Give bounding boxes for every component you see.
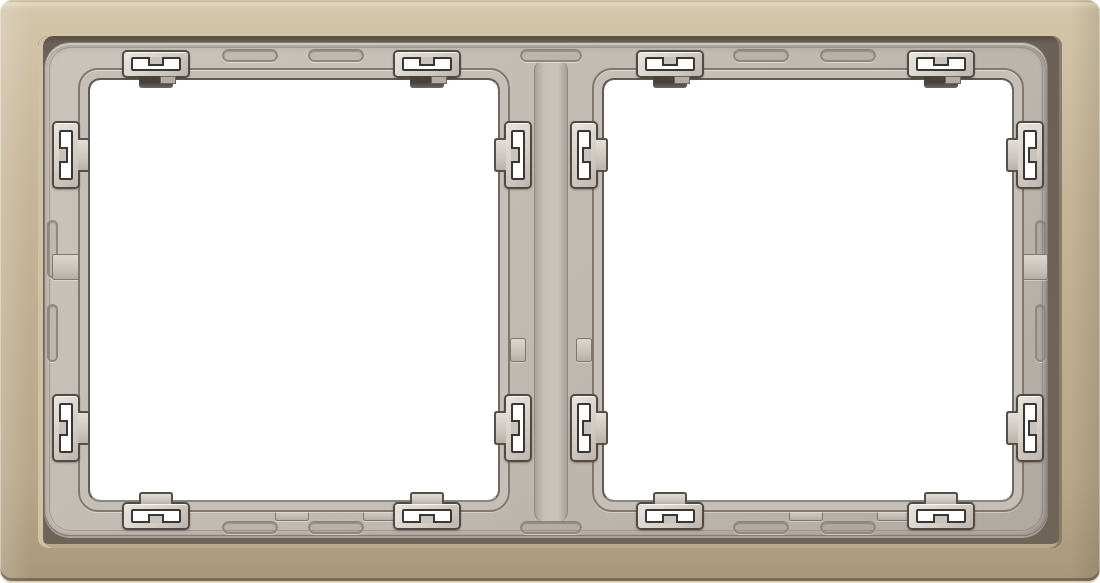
clip-latch-bar — [582, 420, 591, 436]
clip-foot — [410, 492, 444, 504]
mounting-clip — [52, 394, 80, 462]
mounting-clip — [122, 50, 190, 78]
clip-body — [570, 121, 598, 189]
clip-latch-bar — [933, 57, 949, 66]
clip-latch-bar — [511, 420, 520, 436]
panel-groove — [308, 521, 364, 534]
clip-slot — [577, 403, 591, 453]
panel-groove — [222, 49, 278, 62]
clip-foot-step — [160, 76, 176, 84]
clip-slot — [131, 509, 181, 523]
clip-latch-bar — [933, 514, 949, 523]
clip-slot — [577, 130, 591, 180]
clip-body — [52, 394, 80, 462]
product-photo — [0, 0, 1100, 583]
clip-foot — [494, 138, 506, 172]
mounting-clip — [393, 502, 461, 530]
window-right — [602, 78, 1014, 502]
clip-body — [570, 394, 598, 462]
clip-body — [504, 121, 532, 189]
clip-foot — [596, 138, 608, 172]
mounting-clip — [122, 502, 190, 530]
mounting-clip — [1016, 121, 1044, 189]
clip-body — [636, 50, 704, 78]
clip-slot — [916, 509, 966, 523]
mounting-clip — [907, 50, 975, 78]
panel-groove — [1035, 304, 1046, 362]
mounting-clip — [1016, 394, 1044, 462]
clip-body — [393, 502, 461, 530]
clip-foot — [1006, 138, 1018, 172]
clip-latch-bar — [59, 147, 68, 163]
clip-slot — [1023, 130, 1037, 180]
clip-body — [636, 502, 704, 530]
mounting-clip — [636, 502, 704, 530]
mounting-clip — [504, 121, 532, 189]
mounting-clip — [393, 50, 461, 78]
mounting-clip — [504, 394, 532, 462]
mounting-clip — [570, 121, 598, 189]
clip-body — [1016, 394, 1044, 462]
clip-slot — [645, 57, 695, 71]
clip-foot — [653, 492, 687, 504]
panel-groove — [222, 521, 278, 534]
clip-latch-bar — [511, 147, 520, 163]
panel-groove — [47, 304, 58, 362]
clip-body — [52, 121, 80, 189]
carrier-notch — [576, 338, 592, 362]
clip-foot — [139, 492, 173, 504]
mounting-clip — [907, 502, 975, 530]
clip-slot — [59, 130, 73, 180]
mounting-clip — [636, 50, 704, 78]
panel-groove — [820, 49, 876, 62]
clip-latch-bar — [662, 57, 678, 66]
clip-foot-step — [674, 76, 690, 84]
clip-body — [907, 502, 975, 530]
clip-foot — [596, 411, 608, 445]
clip-body — [504, 394, 532, 462]
clip-slot — [402, 57, 452, 71]
panel-groove — [820, 521, 876, 534]
window-left — [88, 78, 500, 502]
clip-foot-step — [945, 76, 961, 84]
clip-slot — [1023, 403, 1037, 453]
clip-latch-bar — [59, 420, 68, 436]
clip-foot — [494, 411, 506, 445]
clip-body — [907, 50, 975, 78]
panel-groove — [520, 49, 582, 62]
clip-slot — [511, 130, 525, 180]
clip-slot — [59, 403, 73, 453]
clip-foot — [78, 411, 90, 445]
clip-slot — [511, 403, 525, 453]
clip-slot — [645, 509, 695, 523]
clip-foot — [1006, 411, 1018, 445]
carrier-notch — [510, 338, 526, 362]
clip-latch-bar — [148, 514, 164, 523]
clip-latch-bar — [1028, 420, 1037, 436]
clip-body — [122, 50, 190, 78]
divider-strip — [534, 60, 568, 522]
mounting-clip — [52, 121, 80, 189]
panel-groove — [733, 49, 789, 62]
clip-foot — [924, 492, 958, 504]
clip-slot — [402, 509, 452, 523]
clip-latch-bar — [662, 514, 678, 523]
clip-body — [122, 502, 190, 530]
clip-latch-bar — [1028, 147, 1037, 163]
panel-groove — [733, 521, 789, 534]
clip-latch-bar — [419, 57, 435, 66]
panel-groove — [308, 49, 364, 62]
clip-latch-bar — [419, 514, 435, 523]
clip-latch-bar — [582, 147, 591, 163]
clip-foot — [78, 138, 90, 172]
clip-slot — [131, 57, 181, 71]
clip-foot-step — [431, 76, 447, 84]
clip-slot — [916, 57, 966, 71]
clip-latch-bar — [148, 57, 164, 66]
clip-body — [1016, 121, 1044, 189]
mounting-clip — [570, 394, 598, 462]
panel-groove — [520, 521, 582, 534]
clip-body — [393, 50, 461, 78]
